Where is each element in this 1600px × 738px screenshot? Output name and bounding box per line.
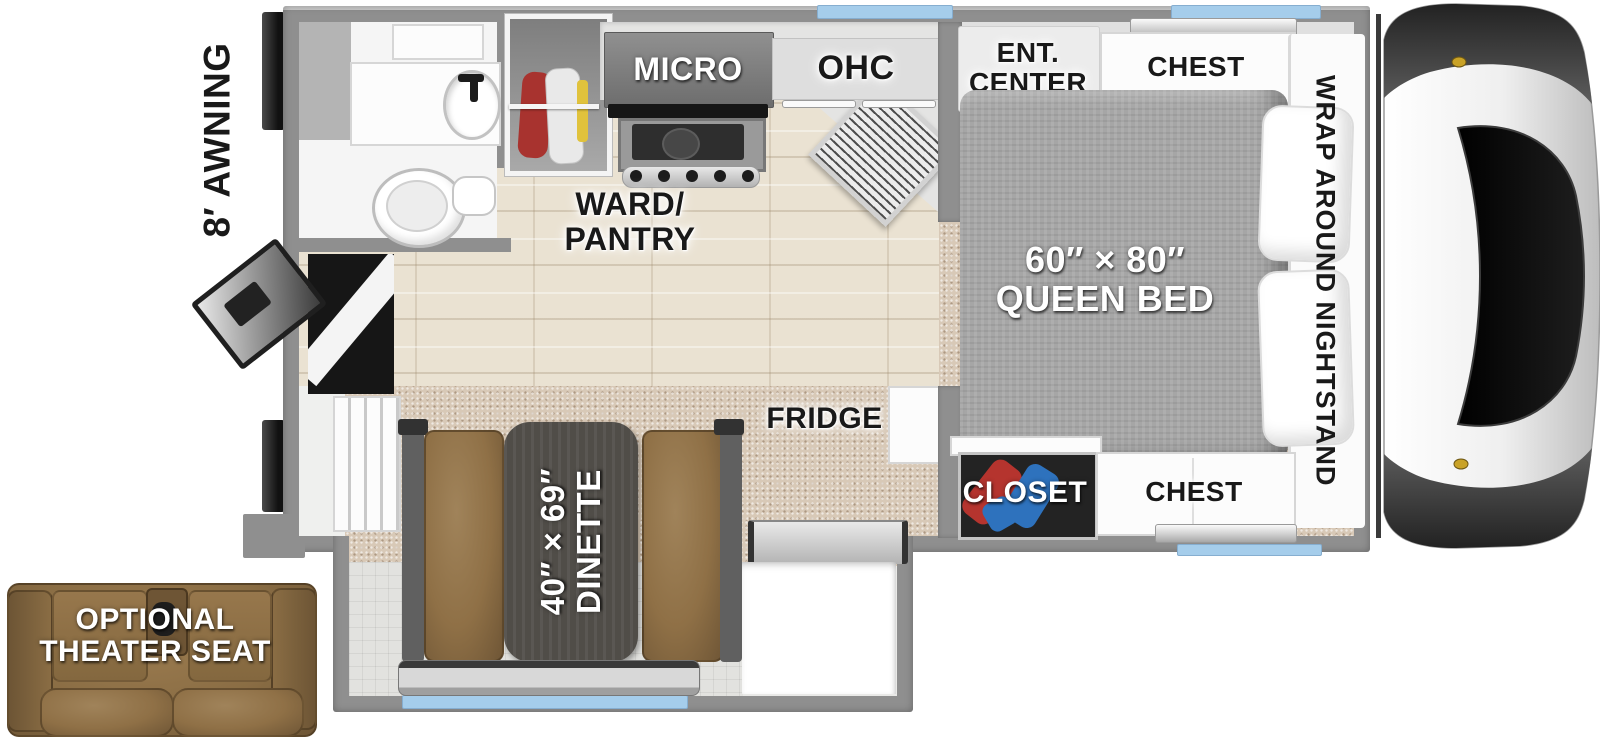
entry-mat [398,660,700,696]
queen-bed-line2: QUEEN BED [996,280,1215,319]
floorplan: 8′ AWNING MICRO [0,0,1600,738]
door-opening [308,254,394,394]
theater-cushion-left [40,688,174,737]
clearance-light-icon [1452,57,1466,67]
dinette-bench-left [424,430,504,662]
bedroom-bottom-rail [1155,524,1297,543]
stove-knob-icon [714,170,726,182]
bench-back-left [402,424,424,662]
stove-knob-icon [742,170,754,182]
theater-seat-label: OPTIONAL THEATER SEAT [25,600,285,672]
bench-cap-left [398,419,428,435]
medicine-cabinet [392,24,484,60]
nightstand-label: WRAP AROUND NIGHTSTAND [1310,75,1339,486]
door-window [223,281,272,328]
cabinet-handle [782,100,856,108]
toilet-tank [452,176,496,216]
stove-knob-icon [658,170,670,182]
range-hood [608,104,768,118]
clearance-light-icon [1454,459,1468,469]
dinette-bench-right [642,430,724,662]
queen-bed-label: 60″ × 80″ QUEEN BED [970,225,1240,335]
step-platform [748,520,908,564]
stove-knob-icon [630,170,642,182]
chest-lower-label-text: CHEST [1145,477,1242,507]
fridge-label: FRIDGE [752,400,897,438]
ward-pantry-label: WARD/ PANTRY [545,182,715,262]
wardrobe-rod [509,104,599,109]
bench-cap-right [714,419,744,435]
awning-label: 8′ AWNING [197,43,237,238]
dinette-table: 40″ × 69″ DINETTE [504,422,638,662]
theater-seat-line2: THEATER SEAT [39,636,271,668]
ward-pantry-line1: WARD/ [575,187,684,222]
theater-cushion-right [172,688,304,737]
door-jog-wall [243,514,305,558]
fridge-label-text: FRIDGE [766,403,882,435]
cap-seam [1376,14,1381,538]
ent-center-line1: ENT. [997,38,1060,68]
ohc-label: OHC [772,38,940,98]
chest-upper-label-text: CHEST [1147,52,1244,82]
stove-knob-icon [686,170,698,182]
ohc-label-text: OHC [817,50,894,87]
closet-label-text: CLOSET [963,477,1088,509]
window-bedroom-bottom [1177,544,1322,556]
toilet-seat [386,180,448,232]
awning-rail-bottom [262,420,285,512]
front-cap [1370,0,1600,552]
theater-seat-line1: OPTIONAL [76,604,235,636]
nightstand-label-wrap: WRAP AROUND NIGHTSTAND [1288,34,1362,528]
awning-label-wrap: 8′ AWNING [178,15,256,265]
chest-lower-label: CHEST [1096,452,1292,532]
closet-label: CLOSET [952,452,1098,534]
entry-step-well [742,562,896,694]
oven-burner-icon [662,128,700,160]
shower-pan [299,22,351,140]
micro-label-text: MICRO [633,52,742,87]
awning-rail-top [262,12,285,130]
bench-back-right [720,424,742,662]
window-top-galley [817,5,953,19]
faucet-spout-icon [470,74,478,102]
hanging-clothes-yellow [577,80,588,142]
queen-bed-line1: 60″ × 80″ [1025,241,1185,280]
window-dinette [402,695,688,709]
window-top-bedroom [1171,5,1321,19]
micro-label: MICRO [604,32,772,106]
door-glass-glare [308,254,394,386]
fridge-cabinet [888,386,942,464]
dinette-label: 40″ × 69″ DINETTE [535,468,606,615]
screen-door-panel [333,396,401,532]
dinette-line2: DINETTE [571,470,607,615]
cabinet-handle [862,100,936,108]
dinette-line1: 40″ × 69″ [535,468,571,615]
ward-pantry-line2: PANTRY [565,222,696,257]
